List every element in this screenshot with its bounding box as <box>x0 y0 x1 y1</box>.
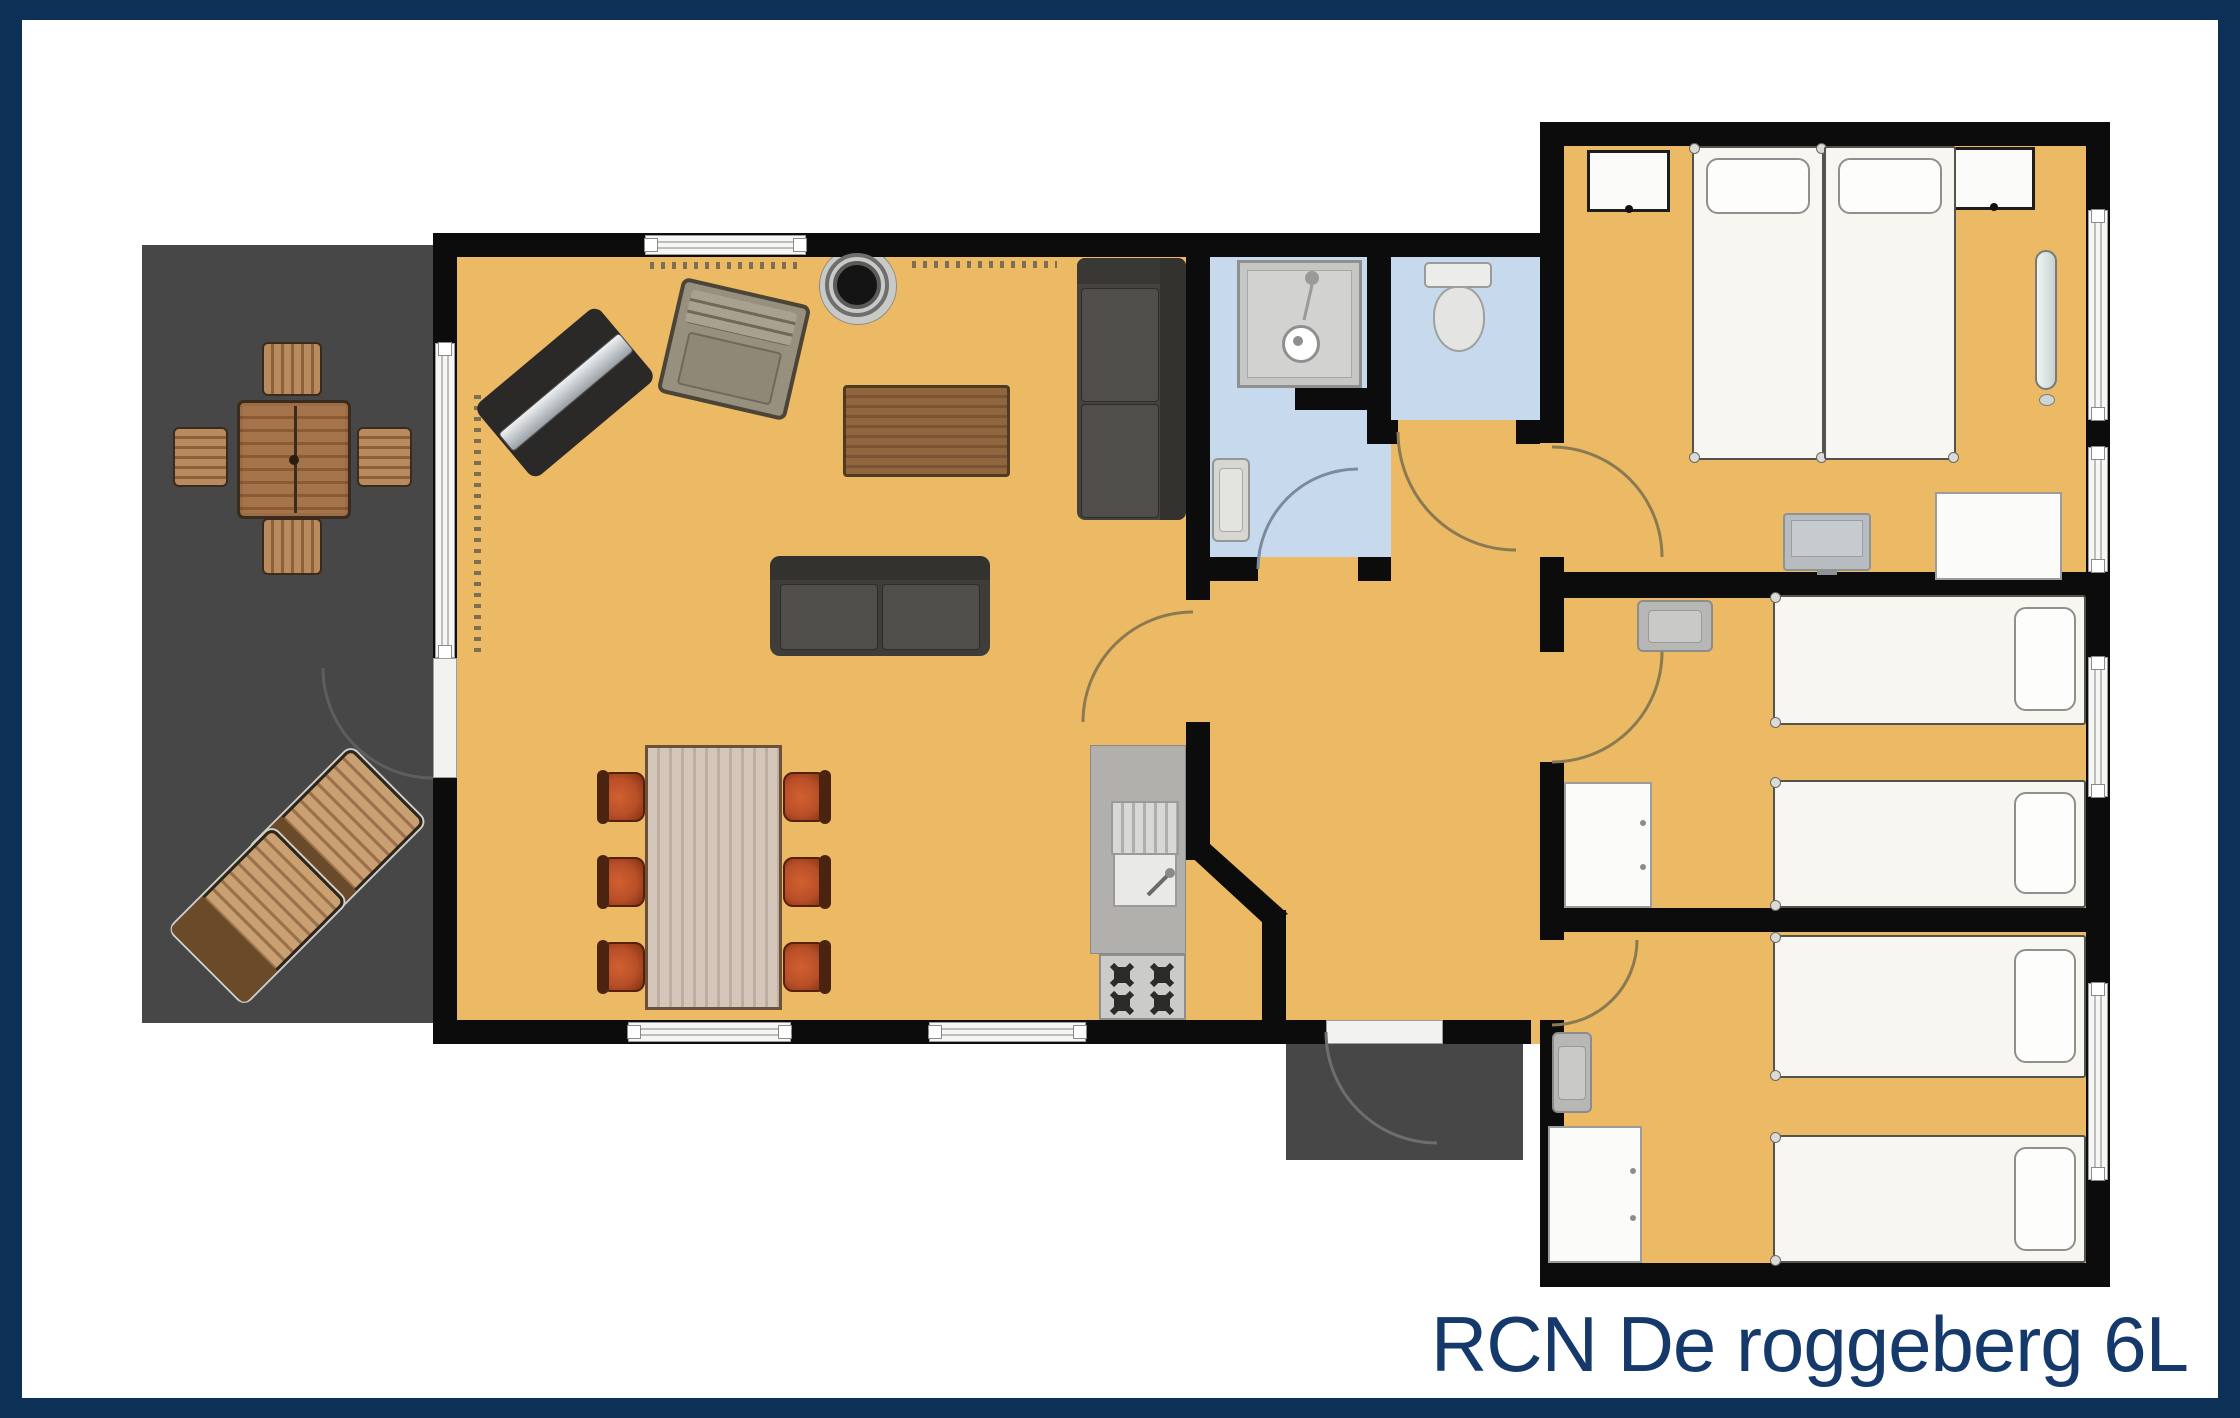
dining-chair-back <box>819 770 831 824</box>
middle-bedroom-closet <box>1564 782 1652 908</box>
plan-title: RCN De roggeberg 6L <box>1431 1299 2188 1390</box>
door-bathroom <box>1258 557 1358 581</box>
terrace-chair-east <box>357 427 412 487</box>
master-tv-stand <box>1817 569 1837 575</box>
wall-north-main <box>433 233 1564 257</box>
master-bed-left-pillow <box>1706 158 1810 214</box>
wall-bath-toilet <box>1367 257 1391 444</box>
closet-handle <box>1640 820 1646 826</box>
bed-post <box>1689 452 1700 463</box>
bed-post <box>1770 1070 1781 1081</box>
dining-chair-back <box>597 940 609 994</box>
window-livingroom-south <box>628 1022 791 1042</box>
wall-bedrooms-divider <box>1540 908 2110 932</box>
terrace-table <box>240 403 348 516</box>
bottom-bedroom-closet <box>1548 1126 1642 1263</box>
bed-post <box>1770 1255 1781 1266</box>
bed-post <box>1770 932 1781 943</box>
wall-wing-south <box>1540 1263 2110 1287</box>
wall-kitchen-east <box>1262 910 1286 1044</box>
window-master-east-2 <box>2088 447 2108 572</box>
toilet-tank <box>1424 262 1492 288</box>
shower-drain-hole <box>1293 336 1303 346</box>
door-terrace <box>433 658 457 778</box>
sofa-two-seat-backrest <box>770 556 990 580</box>
dining-chair-right-2 <box>783 857 827 907</box>
nightstand-knob <box>1625 205 1633 213</box>
door-livingroom-hall <box>1186 600 1210 722</box>
wall-shower-stub <box>1295 388 1367 410</box>
middle-bed-2-pillow <box>2014 792 2076 894</box>
bed-post <box>1770 777 1781 788</box>
shower-tray <box>1237 260 1362 388</box>
middle-bed-1-pillow <box>2014 607 2076 711</box>
dining-chair-left-1 <box>601 772 645 822</box>
nightstand-right <box>1953 147 2035 210</box>
bottom-bed-2-pillow <box>2014 1147 2076 1251</box>
bathroom-sink <box>1212 458 1250 542</box>
bed-post <box>1770 592 1781 603</box>
coffee-table <box>843 385 1010 477</box>
middle-bed-1 <box>1773 595 2086 725</box>
door-master-bedroom <box>1540 443 1564 557</box>
middle-bedroom-dresser <box>1637 600 1713 652</box>
window-livingroom-west <box>435 343 455 658</box>
closet-handle <box>1640 864 1646 870</box>
dining-chair-left-3 <box>601 942 645 992</box>
kitchen-sink <box>1113 853 1177 907</box>
radiator-marks-west <box>474 395 481 655</box>
shower-drain <box>1282 325 1320 363</box>
window-middlebedroom-east <box>2088 657 2108 797</box>
sofa-corner-cushion-1 <box>1081 288 1159 402</box>
window-livingroom-north <box>645 235 806 255</box>
door-front-entrance <box>1326 1020 1443 1044</box>
terrace-chair-west <box>173 427 228 487</box>
bottom-bed-1 <box>1773 935 2086 1078</box>
bed-post <box>1770 717 1781 728</box>
washstand-basin <box>1558 1046 1585 1100</box>
window-kitchen-south <box>929 1022 1086 1042</box>
dining-chair-right-1 <box>783 772 827 822</box>
dresser-top <box>1648 610 1703 644</box>
master-bed-left <box>1692 146 1824 460</box>
wall-wing-north <box>1540 122 2110 146</box>
dining-chair-back <box>819 855 831 909</box>
nightstand-knob <box>1990 203 1998 211</box>
kitchen-drainboard <box>1111 801 1179 855</box>
wall-livingroom-hall <box>1186 233 1210 860</box>
dining-chair-back <box>597 770 609 824</box>
bottom-bed-1-pillow <box>2014 949 2076 1063</box>
bed-post <box>1770 1132 1781 1143</box>
terrace-chair-north <box>262 342 322 396</box>
bed-post <box>1689 143 1700 154</box>
dining-chair-back <box>597 855 609 909</box>
master-tv-screen <box>1791 520 1863 557</box>
master-bed-right-pillow <box>1838 158 1942 214</box>
sofa-two-seat-cushion-2 <box>882 584 980 650</box>
radiator-marks-north-1 <box>650 262 798 269</box>
closet-handle <box>1630 1168 1636 1174</box>
floorplan-image: RCN De roggeberg 6L <box>0 0 2240 1418</box>
radiator-marks-north-2 <box>912 261 1057 268</box>
entrance-porch <box>1286 1044 1523 1160</box>
sofa-corner-backrest <box>1160 258 1186 520</box>
middle-bed-2 <box>1773 780 2086 908</box>
door-bottom-bedroom <box>1540 940 1564 1020</box>
master-tv <box>1783 513 1871 571</box>
wood-stove <box>833 261 881 309</box>
sofa-corner-cushion-2 <box>1081 404 1159 518</box>
window-master-east-1 <box>2088 210 2108 420</box>
terrace-table-dot <box>289 455 299 465</box>
closet-handle <box>1630 1215 1636 1221</box>
kitchen-counter <box>1090 745 1186 954</box>
armchair-seat <box>677 331 783 405</box>
bottom-bedroom-washstand <box>1552 1032 1592 1113</box>
door-middle-bedroom <box>1540 652 1564 762</box>
bottom-bed-2 <box>1773 1135 2086 1263</box>
window-bottombedroom-east <box>2088 983 2108 1180</box>
sofa-two-seat <box>770 556 990 656</box>
master-dresser <box>1935 492 2062 580</box>
sofa-corner-armrest-top <box>1077 258 1160 284</box>
terrace-chair-south <box>262 518 322 575</box>
bed-post <box>1948 452 1959 463</box>
dining-table <box>645 745 782 1010</box>
sofa-two-seat-cushion-1 <box>780 584 878 650</box>
nightstand-left <box>1587 150 1670 212</box>
bathroom-sink-basin <box>1219 468 1243 532</box>
bed-post <box>1770 900 1781 911</box>
dining-chair-left-2 <box>601 857 645 907</box>
dining-chair-right-3 <box>783 942 827 992</box>
kitchen-stove <box>1099 954 1186 1020</box>
master-bed-right <box>1824 146 1956 460</box>
sofa-corner <box>1077 258 1186 520</box>
door-toilet <box>1398 420 1516 444</box>
radiator-valve <box>2039 394 2055 406</box>
dining-chair-back <box>819 940 831 994</box>
radiator <box>2035 250 2057 390</box>
toilet-bowl <box>1433 286 1485 352</box>
